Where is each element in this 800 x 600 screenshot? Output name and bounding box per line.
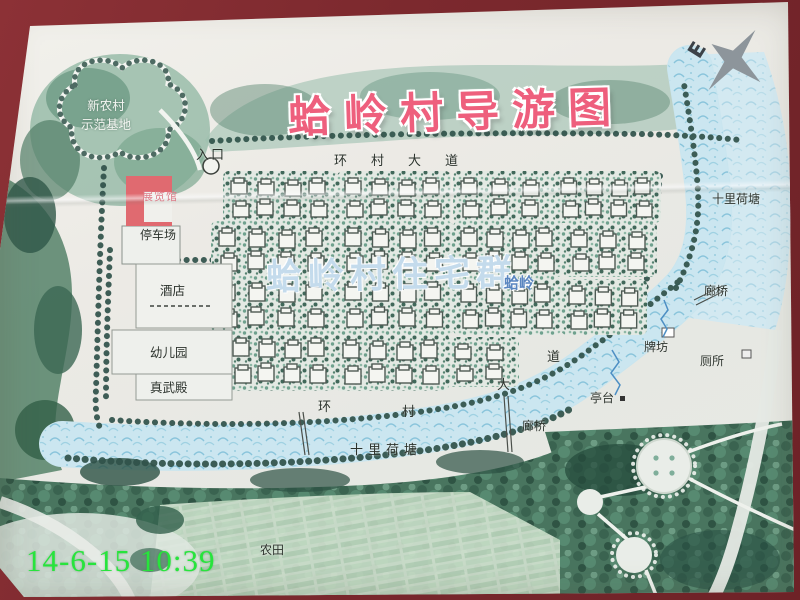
label-parking: 停车场 — [140, 226, 176, 243]
label-entrance: 入口 — [196, 144, 226, 163]
label-ring-char-da: 大 — [497, 374, 510, 393]
compass-north-indicator: E — [686, 14, 774, 102]
label-exhibition-hall: 展览馆 — [142, 188, 178, 204]
label-ring-char-dao: 道 — [547, 346, 560, 365]
label-ring-road-top: 环村大道 — [334, 150, 482, 169]
toilet-icon — [742, 350, 751, 358]
label-village-name: 蛤岭 — [504, 272, 534, 293]
label-lotus-pond-bottom: 十里荷塘 — [350, 439, 422, 458]
label-farmland: 农田 — [260, 541, 284, 558]
label-hotel: 酒店 — [160, 280, 185, 299]
label-toilet: 厕所 — [700, 352, 724, 369]
label-pavilion: 亭台 — [590, 389, 614, 406]
photo-of-map-sign: 蛤岭村导游图 E 新农村 示范基地 入口 环村大道 展览馆 停车场 酒店 幼儿园… — [0, 0, 800, 600]
label-zhenwu-hall: 真武殿 — [150, 377, 188, 396]
label-demo-base: 新农村 示范基地 — [58, 96, 154, 135]
map-board: 蛤岭村导游图 E 新农村 示范基地 入口 环村大道 展览馆 停车场 酒店 幼儿园… — [0, 0, 800, 600]
label-archway: 牌坊 — [644, 338, 668, 355]
label-corridor-bridge-bottom: 廊桥 — [522, 417, 546, 434]
label-ring-char-huan: 环 — [318, 396, 331, 415]
label-ring-char-cun: 村 — [402, 401, 415, 420]
pavilion-icon — [620, 396, 625, 401]
label-residential-overlay: 蛤岭村住宅群 — [266, 244, 519, 300]
map-title: 蛤岭村导游图 — [287, 73, 625, 146]
label-lotus-pond-right: 十里荷塘 — [712, 190, 760, 207]
camera-timestamp: 14-6-15 10:39 — [26, 543, 216, 579]
label-corridor-bridge-right: 廊桥 — [704, 282, 728, 299]
label-kindergarten: 幼儿园 — [150, 342, 188, 361]
